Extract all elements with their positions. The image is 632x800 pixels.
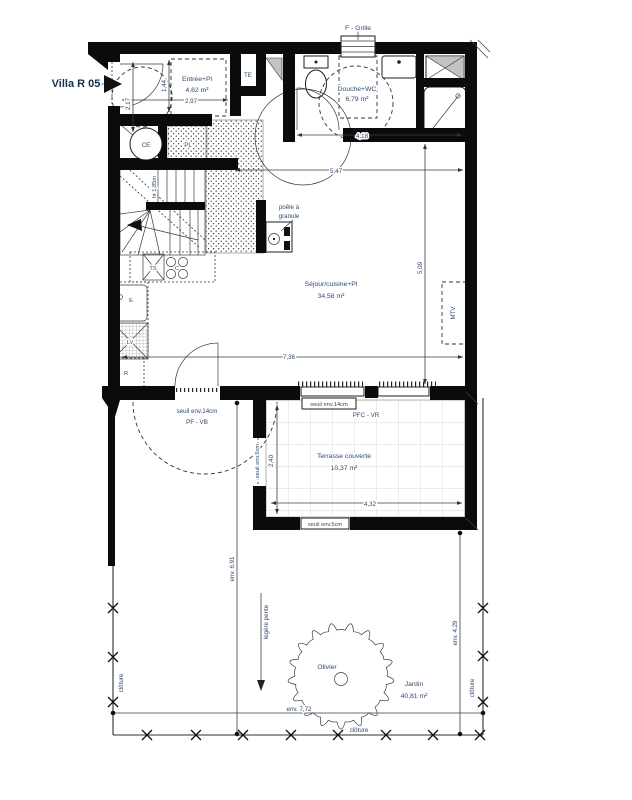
- fence-x-marks: [108, 603, 488, 740]
- entry-arrow: [97, 75, 122, 93]
- te-label: TE: [244, 72, 252, 79]
- dim-547: 5,47: [330, 168, 343, 175]
- toilet: [304, 56, 328, 98]
- dim-144: 1,44: [161, 79, 168, 92]
- fence-bottom-label: clôture: [350, 727, 369, 734]
- mtv-label: MTV: [450, 306, 457, 320]
- olive-tree-trunk: [335, 673, 348, 686]
- seuil14-bay-label: seuil env.14cm: [310, 402, 348, 408]
- slope-label: légère pente: [263, 604, 270, 639]
- pl-label: PL: [184, 142, 192, 149]
- pellet-stove: [266, 220, 293, 252]
- dim-217: 2,17: [125, 97, 132, 110]
- seuil14-door-label: seuil env.14cm: [177, 408, 218, 415]
- ce-label: CE: [142, 142, 151, 149]
- bay-type-label: PFC - VR: [353, 412, 380, 419]
- garden-door: [175, 343, 218, 386]
- fridge-label: R: [124, 371, 128, 377]
- seuil5-bottom-label: seuil env.5cm: [308, 522, 343, 528]
- bathroom-shelf: [426, 56, 464, 80]
- room-jardin-name: Jardin: [405, 681, 424, 688]
- dim-691: env. 6,91: [229, 556, 236, 582]
- room-entree-name: Entrée+Pl: [182, 76, 213, 83]
- room-terrasse-name: Terrasse couverte: [317, 453, 371, 460]
- villa-title: Villa R 05: [52, 78, 101, 90]
- room-terrasse-area: 10,37 m²: [331, 465, 359, 472]
- room-jardin-area: 40,81 m²: [401, 693, 429, 700]
- floor-plan-page: Villa R 05 F - Grille Entrée+Pl 4,62 m² …: [0, 0, 632, 800]
- ventilation-grille: [341, 31, 375, 57]
- hatched-zones: [168, 120, 263, 253]
- dim-432: 4,32: [364, 501, 377, 508]
- stair-direction-arrow: [127, 219, 198, 240]
- stair-height-label: ht 1,85m: [152, 176, 158, 198]
- olive-tree-label: Olivier: [317, 664, 337, 671]
- cooktop-label: C: [175, 266, 179, 272]
- fence-left-label: clôture: [118, 673, 125, 692]
- seuil5-left-label: seuil env.5cm: [255, 444, 261, 479]
- room-entree-area: 4,62 m²: [185, 87, 209, 94]
- room-douche-area: 6,79 m²: [345, 96, 369, 103]
- kitchen: [112, 252, 215, 387]
- dim-297: 2,97: [185, 98, 198, 105]
- room-douche-name: Douche+WC: [338, 86, 377, 93]
- ts-label: TS: [149, 266, 156, 272]
- sink-label: E: [129, 298, 133, 304]
- dim-429: env. 4,29: [452, 620, 459, 646]
- dim-772: env. 7,72: [287, 706, 313, 713]
- staircase: [120, 168, 205, 255]
- room-sejour-area: 34,58 m²: [318, 293, 346, 300]
- washbasin: [382, 56, 416, 78]
- stove-label-1: poêle à: [279, 204, 300, 211]
- room-sejour-name: Séjour/cuisine+Pl: [305, 281, 358, 288]
- dishwasher-label: LV: [127, 340, 134, 346]
- technical-zone-hatch: [206, 120, 263, 253]
- dim-418: 4,18: [356, 133, 369, 140]
- stove-label-2: granule: [279, 213, 300, 220]
- dim-509: 5,09: [417, 261, 424, 274]
- fence-right-label: clôture: [469, 678, 476, 697]
- door-type-label: PF - VB: [186, 419, 208, 426]
- dim-240: 2,40: [268, 454, 275, 467]
- floor-plan-svg: Villa R 05 F - Grille Entrée+Pl 4,62 m² …: [0, 0, 632, 800]
- dim-736: 7,36: [283, 354, 296, 361]
- door-recess-shelf: [266, 58, 282, 80]
- grille-label: F - Grille: [345, 25, 371, 32]
